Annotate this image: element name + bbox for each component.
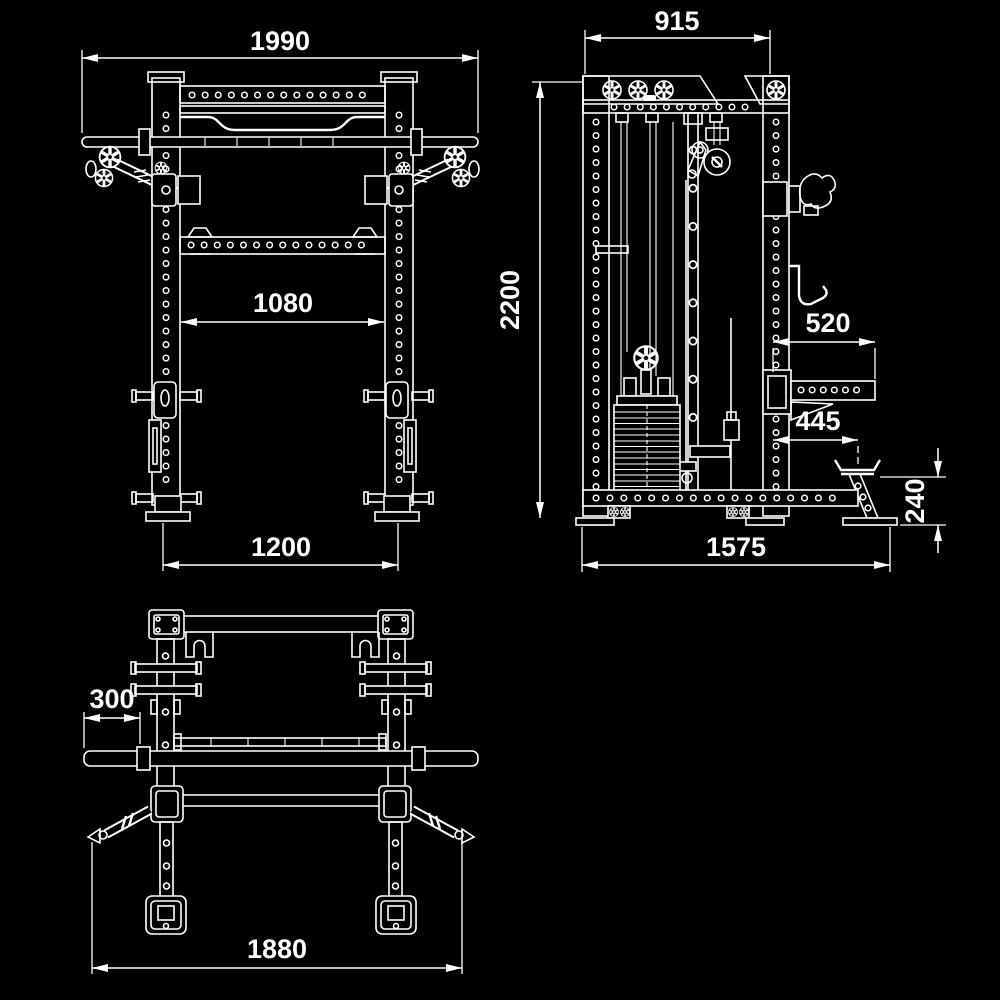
front-barbell bbox=[82, 129, 478, 155]
front-barbell-collar-right bbox=[411, 129, 422, 155]
side-pulley-head bbox=[583, 76, 789, 124]
star-knob-icon bbox=[100, 147, 121, 168]
dim-front-base-width: 1200 bbox=[163, 523, 398, 571]
dim-front-inner-width: 1080 bbox=[181, 288, 384, 322]
plan-side-pegs bbox=[131, 662, 431, 696]
dim-label: 1990 bbox=[250, 26, 310, 56]
star-knob-icon bbox=[452, 169, 469, 186]
dim-label: 445 bbox=[795, 406, 840, 436]
drawing-svg: 1990 1080 1200 bbox=[0, 0, 1000, 1000]
side-view-drawing: 915 2200 520 445 240 1 bbox=[495, 6, 946, 572]
dim-label: 1880 bbox=[247, 934, 307, 964]
pulley-icon bbox=[767, 81, 785, 99]
dim-label: 1575 bbox=[706, 532, 766, 562]
star-knob-icon bbox=[95, 169, 112, 186]
front-barbell-collar-left bbox=[139, 129, 150, 155]
dim-label: 240 bbox=[900, 478, 930, 523]
side-j-hook bbox=[789, 266, 827, 304]
front-bent-pullup-bar bbox=[180, 117, 385, 130]
plan-barbell bbox=[84, 747, 478, 770]
dim-label: 300 bbox=[89, 684, 134, 714]
plan-barbell-collar-left bbox=[137, 747, 150, 770]
plan-right-stabilizer bbox=[412, 810, 474, 843]
plan-barbell-collar-right bbox=[412, 747, 425, 770]
plan-top-crossbar bbox=[149, 610, 413, 639]
dim-side-platform-offset: 445 bbox=[773, 406, 858, 466]
side-roller-attachment bbox=[763, 174, 835, 216]
pulley-icon bbox=[634, 346, 657, 369]
dim-side-frame-depth: 915 bbox=[585, 6, 770, 74]
dim-label: 1200 bbox=[251, 532, 311, 562]
front-view-drawing: 1990 1080 1200 bbox=[82, 26, 479, 571]
dim-plan-sleeve-length: 300 bbox=[84, 684, 140, 748]
front-middle-crossbar bbox=[180, 228, 385, 254]
side-adjuster-rods bbox=[678, 180, 739, 492]
dim-side-base-depth: 1575 bbox=[582, 527, 890, 572]
plan-smith-bar bbox=[174, 734, 386, 750]
front-top-crossbar bbox=[180, 86, 385, 130]
dim-label: 915 bbox=[654, 6, 699, 36]
dim-side-total-height: 2200 bbox=[495, 82, 583, 518]
pulley-icon bbox=[655, 81, 673, 99]
front-slotted-plates bbox=[149, 420, 416, 472]
front-feet bbox=[146, 496, 419, 521]
dim-label: 520 bbox=[805, 308, 850, 338]
pulley-icon bbox=[603, 81, 621, 99]
dim-label: 2200 bbox=[495, 270, 525, 330]
dim-label: 1080 bbox=[253, 288, 313, 318]
dim-front-total-width: 1990 bbox=[82, 26, 478, 133]
plan-cross-member bbox=[151, 786, 411, 822]
side-weight-stack bbox=[614, 346, 680, 492]
star-knob-icon bbox=[445, 147, 466, 168]
plan-view-drawing: 300 1880 bbox=[84, 610, 478, 974]
plan-j-hooks bbox=[186, 632, 379, 657]
plan-left-stabilizer bbox=[88, 810, 150, 843]
technical-drawing-canvas: 1990 1080 1200 bbox=[0, 0, 1000, 1000]
plan-rear-runners bbox=[146, 822, 416, 934]
side-rear-column bbox=[763, 76, 789, 516]
side-base bbox=[576, 490, 858, 525]
